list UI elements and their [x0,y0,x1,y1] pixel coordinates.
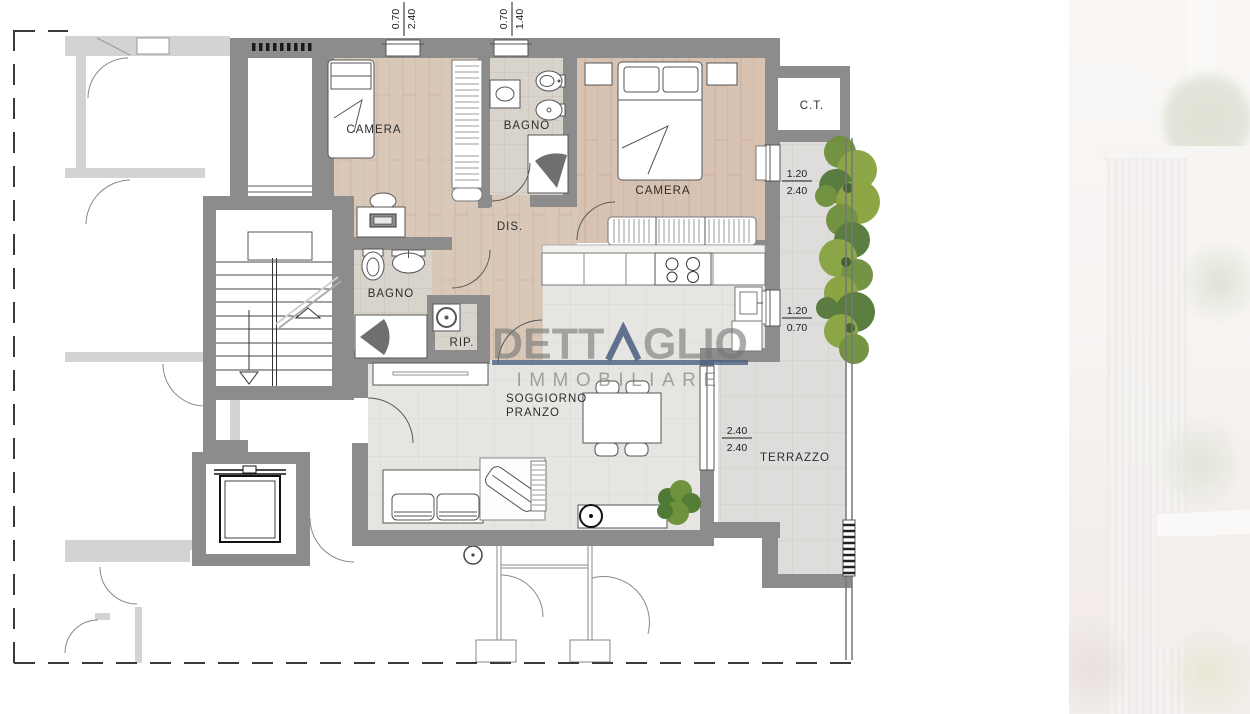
svg-text:0.70: 0.70 [498,9,510,30]
floorplan-drawing: 0.70 2.40 0.70 1.40 1.20 2.40 1.20 0.70 … [0,0,1250,714]
label-bagno1: BAGNO [504,120,551,132]
svg-text:2.40: 2.40 [787,185,808,197]
label-soggiorno-1: SOGGIORNO [506,393,587,405]
svg-text:1.40: 1.40 [514,9,526,30]
svg-text:2.40: 2.40 [406,9,418,30]
label-camera2: CAMERA [635,185,690,197]
armchair [480,458,546,520]
wardrobe-camera1 [452,60,482,201]
label-soggiorno-2: PRANZO [506,407,560,419]
washing-machine [433,304,460,331]
label-terrazzo: TERRAZZO [760,452,830,464]
shaft-hatch [252,43,312,51]
render-white-wash [1069,0,1250,714]
sofa [383,470,483,523]
media-sideboard [578,505,667,528]
lower-unit-outlines [464,546,649,662]
floorplan-canvas: 0.70 2.40 0.70 1.40 1.20 2.40 1.20 0.70 … [0,0,1250,714]
wardrobe-camera2 [608,217,756,245]
staircase [216,210,341,386]
bed-single [328,60,374,158]
svg-text:2.40: 2.40 [727,442,748,454]
building-render-photo [1069,0,1250,714]
svg-text:1.20: 1.20 [787,305,808,317]
label-bagno2: BAGNO [368,288,415,300]
svg-text:1.20: 1.20 [787,168,808,180]
window-measure-top-1: 0.70 2.40 [390,2,418,36]
svg-text:2.40: 2.40 [727,425,748,437]
svg-text:0.70: 0.70 [390,9,402,30]
window-measure-top-2: 0.70 1.40 [498,2,526,36]
label-camera1: CAMERA [346,124,401,136]
label-ct: C.T. [800,100,824,112]
entry-sideboard [373,363,488,385]
svg-text:0.70: 0.70 [787,322,808,334]
label-disimpegno: DIS. [497,221,523,233]
label-ripostiglio: RIP. [450,337,475,349]
